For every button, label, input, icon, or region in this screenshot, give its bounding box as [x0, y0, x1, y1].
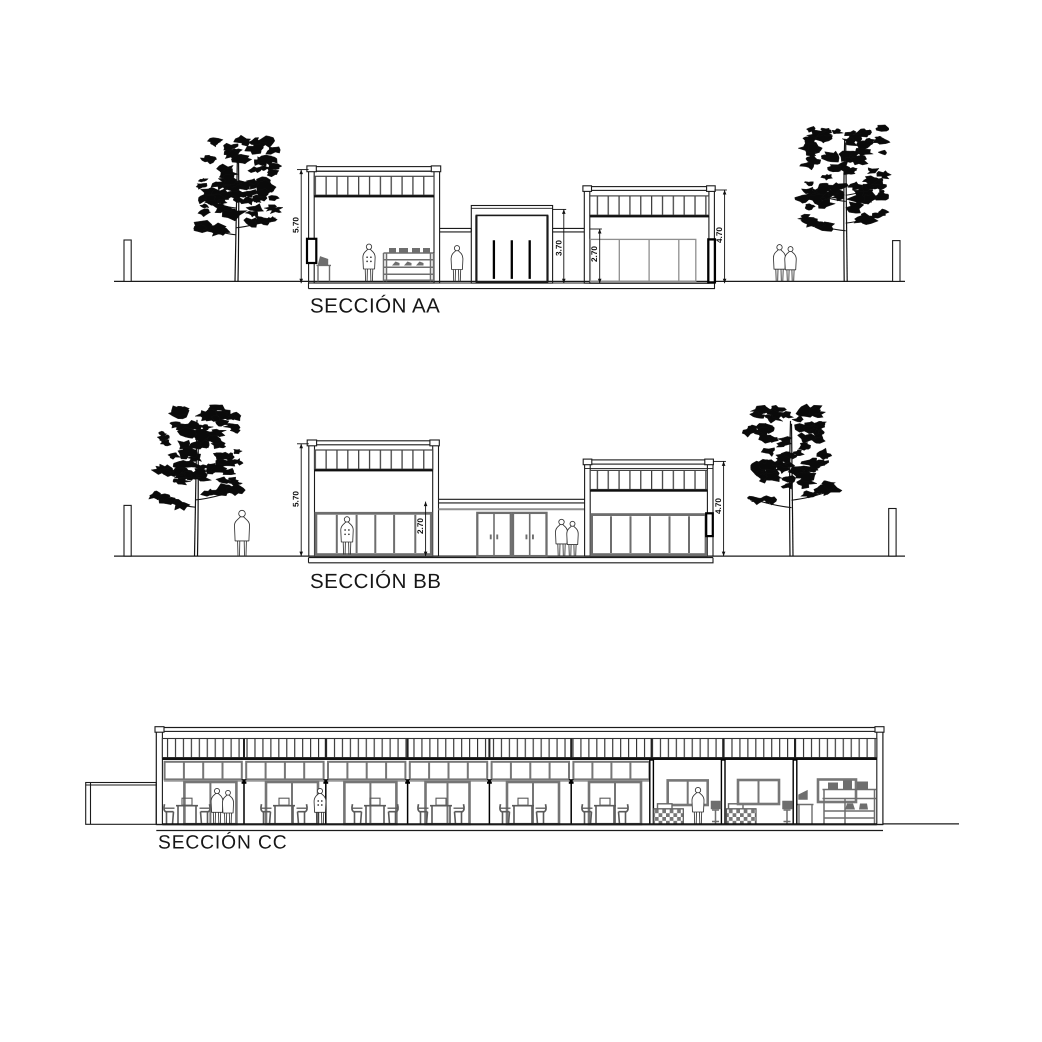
svg-text:2.70: 2.70: [590, 246, 599, 262]
svg-text:5.70: 5.70: [292, 491, 301, 507]
svg-text:2.70: 2.70: [416, 518, 425, 534]
svg-text:SECCIÓN CC: SECCIÓN CC: [158, 831, 287, 853]
svg-text:3.70: 3.70: [554, 240, 563, 256]
svg-text:SECCIÓN AA: SECCIÓN AA: [310, 295, 440, 318]
svg-text:SECCIÓN BB: SECCIÓN BB: [310, 570, 441, 593]
svg-text:5.70: 5.70: [292, 217, 301, 233]
svg-text:4.70: 4.70: [715, 227, 724, 243]
svg-text:4.70: 4.70: [714, 498, 723, 514]
